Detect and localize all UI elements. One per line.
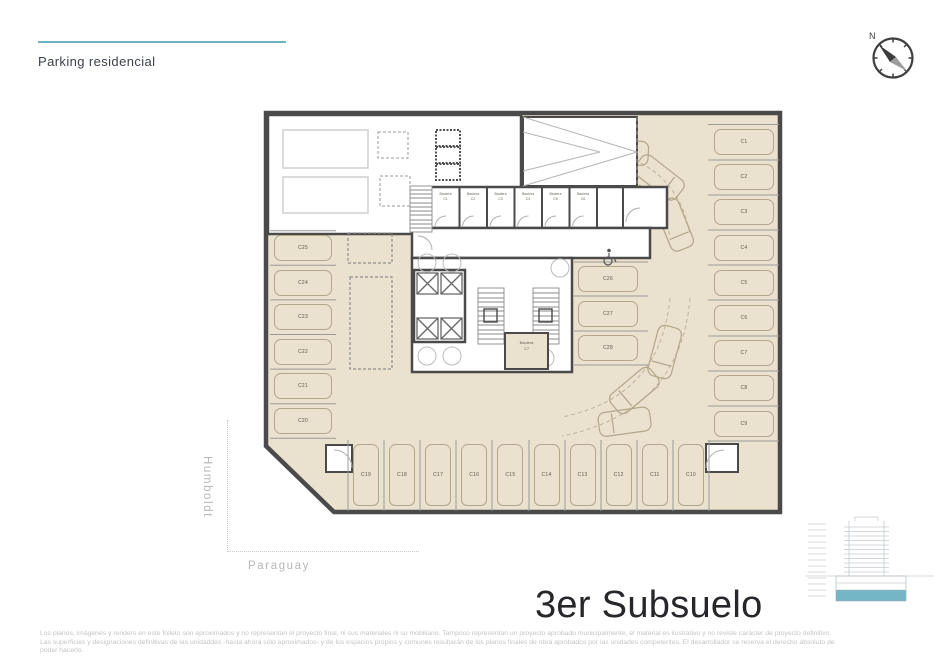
- parking-spot-c11: C11: [642, 444, 668, 506]
- spot-label: C11: [650, 472, 660, 478]
- spot-label: C26: [603, 276, 613, 282]
- parking-spot-c26: C26: [578, 266, 638, 292]
- parking-spot-c3: C3: [714, 199, 774, 225]
- compass-icon: [874, 39, 913, 78]
- baulera-c1: BauleraC1: [433, 192, 459, 201]
- stairs-utility: [410, 186, 432, 232]
- spot-label: C17: [433, 472, 443, 478]
- parking-spot-c5: C5: [714, 270, 774, 296]
- parking-spot-c2: C2: [714, 164, 774, 190]
- baulera-c3: BauleraC3: [488, 192, 514, 201]
- baulera-code: C4: [526, 197, 530, 201]
- parking-spot-c8: C8: [714, 375, 774, 401]
- spot-label: C14: [541, 472, 551, 478]
- spot-label: C9: [741, 421, 748, 427]
- parking-spot-c1: C1: [714, 129, 774, 155]
- parking-spot-c10: C10: [678, 444, 704, 506]
- section-highlight-level: [837, 591, 906, 601]
- baulera-code: C7: [524, 347, 529, 352]
- spot-label: C18: [397, 472, 407, 478]
- baulera-name: Baulera: [494, 192, 506, 196]
- baulera-c4: BauleraC4: [515, 192, 541, 201]
- baulera-name: Baulera: [520, 341, 534, 346]
- spot-label: C5: [741, 280, 748, 286]
- spot-label: C28: [603, 345, 613, 351]
- baulera-c2: BauleraC2: [460, 192, 486, 201]
- spot-label: C1: [741, 139, 748, 145]
- elevators: [414, 270, 465, 342]
- parking-spot-c6: C6: [714, 305, 774, 331]
- baulera-name: Baulera: [577, 192, 589, 196]
- parking-spot-c19: C19: [353, 444, 379, 506]
- baulera-code: C2: [471, 197, 475, 201]
- spot-label: C25: [298, 245, 308, 251]
- parking-spot-c18: C18: [389, 444, 415, 506]
- ramp: [523, 117, 637, 186]
- spot-label: C16: [469, 472, 479, 478]
- parking-spot-c28: C28: [578, 335, 638, 361]
- spot-label: C6: [741, 315, 748, 321]
- street-label-humboldt: Humboldt: [201, 456, 213, 518]
- parking-spot-c17: C17: [425, 444, 451, 506]
- spot-label: C19: [361, 472, 371, 478]
- street-line-vertical: [227, 420, 228, 552]
- parking-spot-c15: C15: [497, 444, 523, 506]
- baulera-c6: BauleraC6: [570, 192, 596, 201]
- parking-spot-c9: C9: [714, 411, 774, 437]
- disclaimer-line-1: Los planos, imágenes y renders en este f…: [40, 630, 831, 637]
- spot-label: C8: [741, 385, 748, 391]
- baulera-code: C5: [553, 197, 557, 201]
- section-diagram: [806, 517, 934, 601]
- baulera-c7: BauleraC7: [506, 341, 547, 351]
- brochure-page: Parking residencial N: [0, 0, 948, 670]
- spot-label: C27: [603, 311, 613, 317]
- parking-spot-c22: C22: [274, 339, 332, 365]
- floor-plan-drawing: [0, 0, 948, 670]
- disclaimer-line-2: Las superficies y designaciones definiti…: [40, 639, 835, 646]
- baulera-name: Baulera: [467, 192, 479, 196]
- spot-label: C12: [614, 472, 624, 478]
- parking-spot-c27: C27: [578, 301, 638, 327]
- baulera-code: C6: [581, 197, 585, 201]
- parking-spot-c20: C20: [274, 408, 332, 434]
- parking-spot-c21: C21: [274, 373, 332, 399]
- baulera-name: Baulera: [439, 192, 451, 196]
- spot-label: C7: [741, 350, 748, 356]
- level-title: 3er Subsuelo: [535, 584, 763, 627]
- spot-label: C20: [298, 418, 308, 424]
- baulera-name: Baulera: [549, 192, 561, 196]
- parking-spot-c4: C4: [714, 235, 774, 261]
- spot-label: C21: [298, 383, 308, 389]
- spot-label: C13: [578, 472, 588, 478]
- baulera-code: C1: [443, 197, 447, 201]
- baulera-name: Baulera: [522, 192, 534, 196]
- parking-spot-c13: C13: [570, 444, 596, 506]
- parking-spot-c16: C16: [461, 444, 487, 506]
- spot-label: C10: [686, 472, 696, 478]
- baulera-code: C3: [498, 197, 502, 201]
- parking-spot-c24: C24: [274, 270, 332, 296]
- disclaimer-line-3: poder hacerlo.: [40, 647, 83, 654]
- spot-label: C23: [298, 314, 308, 320]
- spot-label: C2: [741, 174, 748, 180]
- spot-label: C24: [298, 280, 308, 286]
- spot-label: C4: [741, 245, 748, 251]
- spot-label: C15: [505, 472, 515, 478]
- parking-spot-c14: C14: [534, 444, 560, 506]
- parking-spot-c12: C12: [606, 444, 632, 506]
- street-label-paraguay: Paraguay: [248, 560, 310, 572]
- baulera-c7-cell: [505, 333, 548, 369]
- spot-label: C22: [298, 349, 308, 355]
- parking-spot-c7: C7: [714, 340, 774, 366]
- spot-label: C3: [741, 209, 748, 215]
- street-line-horizontal: [227, 551, 419, 552]
- parking-spot-c25: C25: [274, 235, 332, 261]
- baulera-c5: BauleraC5: [543, 192, 569, 201]
- parking-spot-c23: C23: [274, 304, 332, 330]
